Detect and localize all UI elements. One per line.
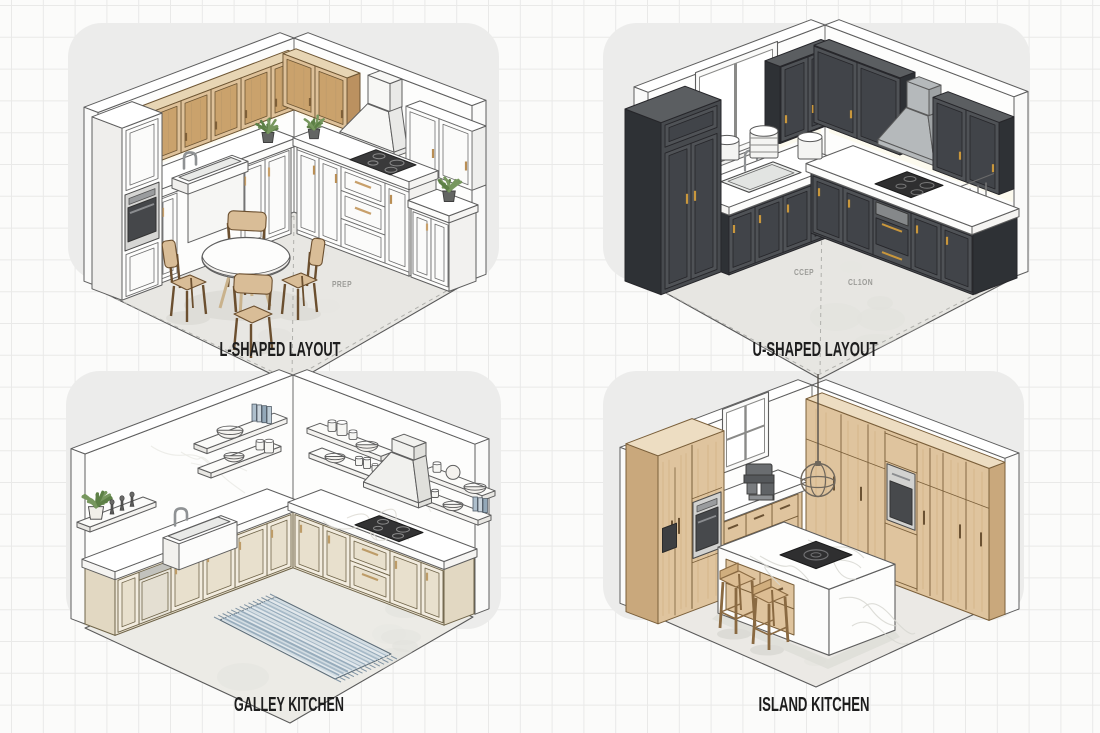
svg-text:ISLAND KITCHEN: ISLAND KITCHEN — [759, 693, 870, 716]
svg-text:U-SHAPED LAYOUT: U-SHAPED LAYOUT — [753, 338, 878, 361]
svg-text:PREP: PREP — [332, 279, 352, 289]
svg-text:L-SHAPED LAYOUT: L-SHAPED LAYOUT — [220, 338, 341, 361]
svg-text:CCEP: CCEP — [794, 267, 814, 277]
svg-text:GALLEY KITCHEN: GALLEY KITCHEN — [234, 693, 344, 716]
svg-text:CL1ON: CL1ON — [848, 277, 873, 287]
